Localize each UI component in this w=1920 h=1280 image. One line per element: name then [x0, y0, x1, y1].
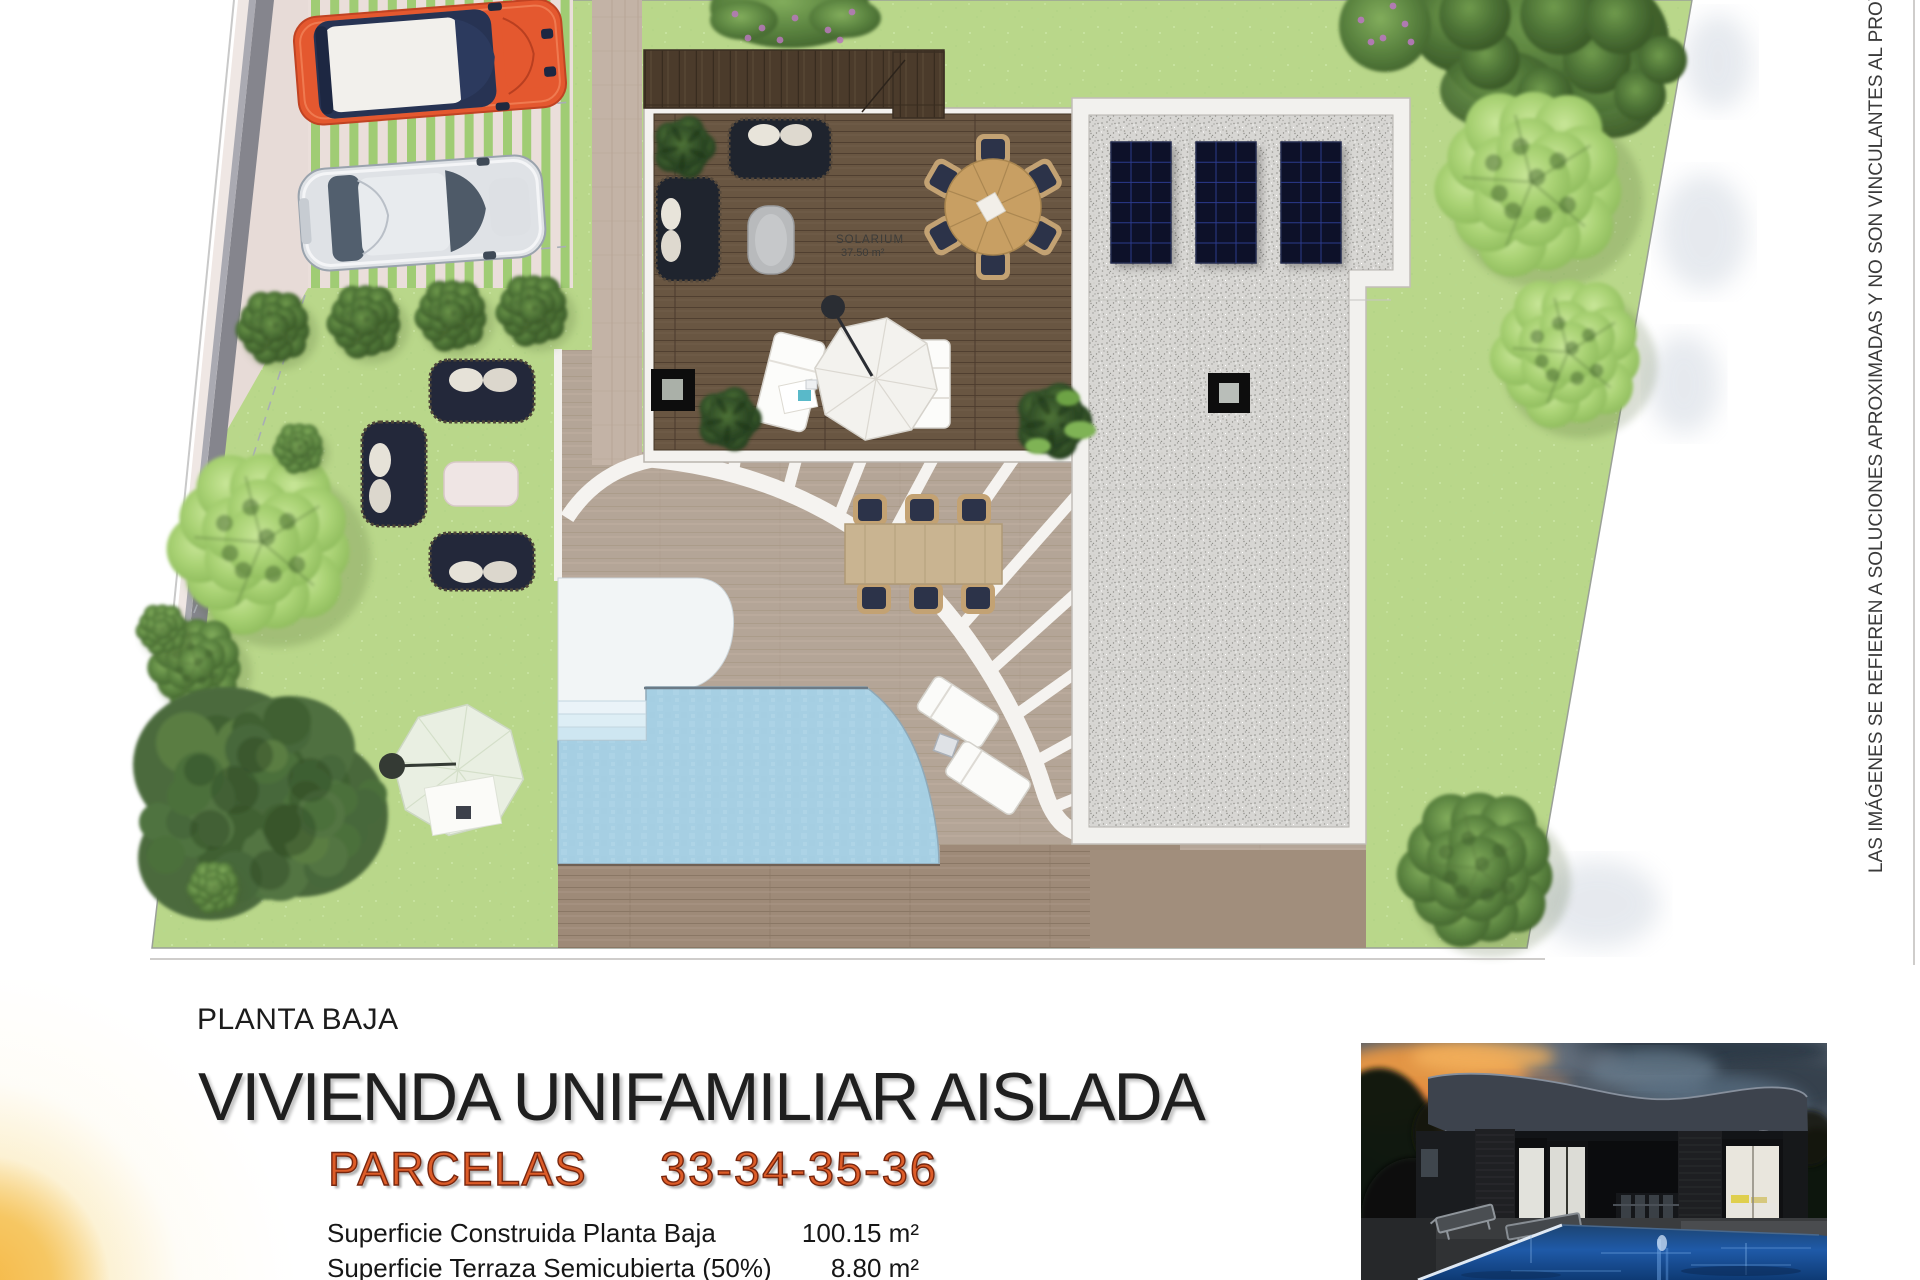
svg-text:37.50 m²: 37.50 m²	[841, 247, 885, 259]
svg-text:SOLARIUM: SOLARIUM	[836, 234, 904, 246]
